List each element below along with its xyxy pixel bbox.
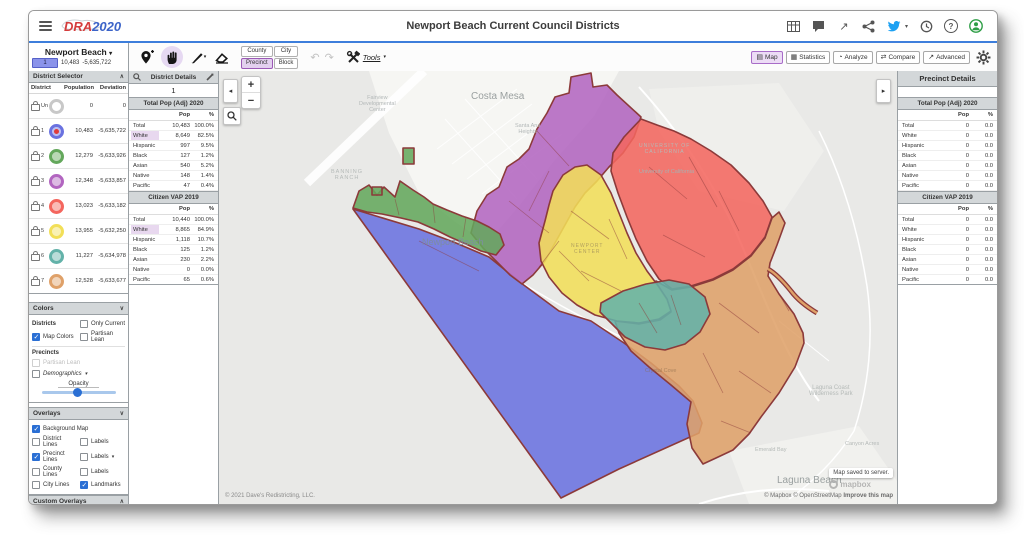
left-sidebar: District Selector∧ District Population D… (29, 71, 129, 504)
district-2-island-2[interactable] (372, 187, 382, 195)
logo-text-dra: DRA (64, 19, 92, 34)
map-attribution: © Mapbox © OpenStreetMap Improve this ma… (764, 493, 893, 499)
section-total-pop: Total Pop (Adj) 2020 (898, 98, 997, 110)
twitter-icon[interactable] (887, 19, 901, 33)
map-icon: ▤ (756, 54, 763, 61)
geo-city-button[interactable]: City (274, 46, 299, 57)
view-switcher: ▤Map ▦Statistics ◔Analyze ⇄Compare ↗Adva… (751, 50, 991, 65)
stat-row: Hispanic1,11810.7% (129, 235, 218, 245)
collapse-icon: ∨ (120, 410, 124, 417)
comment-icon[interactable] (812, 19, 826, 33)
paint-brush-tool[interactable]: ▾ (189, 47, 207, 67)
stat-row: Total00.0 (898, 215, 997, 225)
section-citizen-vap: Citizen VAP 2019 (898, 191, 997, 204)
stat-row: White8,86584.9% (129, 225, 218, 235)
chip-population: 10,483 (61, 60, 79, 66)
dra-attribution: © 2021 Dave's Redistricting, LLC. (225, 493, 315, 499)
district-color-swatch[interactable] (49, 99, 64, 114)
district-row-6[interactable]: 6 11,227 -5,634,978 (29, 244, 128, 269)
stat-row: Pacific00.0 (898, 181, 997, 191)
district-selector-columns: District Population Deviation (29, 83, 128, 94)
districts-label: Districts (32, 321, 77, 327)
mapbox-logo-icon (829, 480, 838, 489)
eraser-tool[interactable] (213, 47, 231, 67)
stat-row: Hispanic00.0 (898, 141, 997, 151)
section-citizen-vap: Citizen VAP 2019 (129, 191, 218, 204)
dra-logo[interactable]: DRA2020 (64, 19, 121, 34)
edit-pencil-icon[interactable] (206, 73, 214, 81)
lock-icon[interactable] (31, 104, 40, 111)
only-current-checkbox[interactable] (80, 320, 88, 328)
geo-precinct-button[interactable]: Precinct (241, 58, 273, 69)
district-labels-checkbox[interactable] (80, 438, 88, 446)
zoom-in-button[interactable]: + (242, 77, 260, 93)
stat-row: Native00.0 (898, 265, 997, 275)
demographics-checkbox[interactable] (32, 370, 40, 378)
stat-row: Black1251.2% (129, 245, 218, 255)
lock-icon[interactable] (31, 279, 40, 286)
stat-row: White00.0 (898, 131, 997, 141)
district-color-swatch[interactable] (49, 249, 64, 264)
opacity-slider-knob[interactable] (73, 388, 82, 397)
brush-caret-icon: ▾ (204, 54, 207, 60)
stat-row: Black00.0 (898, 245, 997, 255)
toolbar: Newport Beach ▾ 1 10,483 -5,635,722 ▾ Co… (29, 43, 997, 72)
lock-icon[interactable] (31, 179, 40, 186)
analyze-icon: ◔ (838, 54, 842, 61)
stat-row: Black1271.2% (129, 151, 218, 161)
district-row-3[interactable]: 3 12,348 -5,633,857 (29, 169, 128, 194)
stat-row: Pacific650.6% (129, 275, 218, 285)
demographics-caret-icon[interactable]: ▾ (85, 371, 88, 377)
district-row-2[interactable]: 2 12,279 -5,633,926 (29, 144, 128, 169)
district-row-un[interactable]: Un 0 0 (29, 94, 128, 119)
lock-icon[interactable] (31, 254, 40, 261)
share-icon[interactable] (862, 19, 876, 33)
history-buttons: ↶ ↷ (310, 51, 333, 64)
tab-advanced[interactable]: ↗Advanced (923, 51, 970, 64)
tab-analyze[interactable]: ◔Analyze (833, 51, 872, 64)
stat-row: Asian00.0 (898, 161, 997, 171)
tools-menu[interactable]: Tools ▾ (346, 50, 386, 64)
collapse-left-panel-button[interactable]: ◂ (223, 79, 238, 103)
geo-county-button[interactable]: County (241, 46, 273, 57)
top-bar: DRA2020 Newport Beach Current Council Di… (29, 11, 997, 41)
district-row-1[interactable]: 1 10,483 -5,635,722 (29, 119, 128, 144)
colors-panel: Colors∨ Districts Only Current Map Color… (29, 302, 128, 403)
settings-gear-icon[interactable] (976, 50, 991, 65)
pan-hand-tool[interactable] (161, 46, 183, 68)
landmarks-checkbox[interactable] (80, 481, 88, 489)
stat-row: Black00.0 (898, 151, 997, 161)
stat-row: Pacific00.0 (898, 275, 997, 285)
main-content: District Selector∧ District Population D… (29, 71, 997, 504)
collapse-right-panel-button[interactable]: ▸ (876, 79, 891, 103)
topbar-actions: ↗ ▾ ? (787, 19, 983, 33)
stat-row: White00.0 (898, 225, 997, 235)
magnifier-icon[interactable] (133, 73, 141, 81)
stat-row: Native00.0 (898, 171, 997, 181)
stat-row: Asian2302.2% (129, 255, 218, 265)
stat-row: Hispanic00.0 (898, 235, 997, 245)
district-selector-panel: District Selector∧ District Population D… (29, 71, 128, 294)
district-color-swatch[interactable] (49, 124, 64, 139)
table-view-icon[interactable] (787, 19, 801, 33)
paint-tools: ▾ (137, 46, 231, 68)
twitter-caret-icon[interactable]: ▾ (905, 23, 908, 30)
district-details-header: District Details (129, 71, 218, 84)
district-color-swatch[interactable] (49, 149, 64, 164)
stat-row: Native1481.4% (129, 171, 218, 181)
stat-row: White8,64982.5% (129, 131, 218, 141)
precinct-labels-checkbox[interactable] (80, 453, 88, 461)
map-colors-checkbox[interactable] (32, 333, 40, 341)
lock-icon[interactable] (31, 204, 40, 211)
tab-compare[interactable]: ⇄Compare (876, 51, 921, 64)
partisan-lean-checkbox[interactable] (80, 333, 88, 341)
add-point-tool[interactable] (137, 47, 155, 67)
precincts-label: Precincts (32, 346, 125, 356)
stat-row: Native00.0% (129, 265, 218, 275)
stat-row: Asian00.0 (898, 255, 997, 265)
zoom-to-fit-button[interactable] (223, 107, 241, 125)
stat-row: Asian5405.2% (129, 161, 218, 171)
compare-icon: ⇄ (881, 54, 887, 61)
stat-row: Total00.0 (898, 121, 997, 131)
redo-button[interactable]: ↷ (325, 51, 334, 64)
app-window: DRA2020 Newport Beach Current Council Di… (28, 10, 998, 505)
precinct-details-header: Precinct Details (898, 71, 997, 87)
district-details-value: 1 (129, 84, 218, 98)
district-row-7[interactable]: 7 12,528 -5,633,677 (29, 269, 128, 293)
logo-text-year: 2020 (92, 19, 121, 34)
background-map-checkbox[interactable] (32, 425, 40, 433)
opacity-label: Opacity (58, 381, 98, 388)
screen: DRA2020 Newport Beach Current Council Di… (0, 0, 1024, 543)
collapse-icon: ∧ (120, 498, 124, 505)
selected-district-stats: 1 10,483 -5,635,722 (29, 57, 128, 68)
stat-row: Total10,440100.0% (129, 215, 218, 225)
lock-icon[interactable] (31, 229, 40, 236)
district-lines-checkbox[interactable] (32, 438, 40, 446)
map-name-dropdown[interactable]: Newport Beach ▾ (29, 47, 128, 57)
hammer-wrench-icon (346, 50, 360, 64)
stat-row: Hispanic9979.5% (129, 141, 218, 151)
district-selector-header[interactable]: District Selector∧ (29, 71, 128, 83)
stat-row: Pacific470.4% (129, 181, 218, 191)
collapse-icon: ∧ (120, 73, 124, 80)
zoom-out-button[interactable]: − (242, 93, 260, 108)
map-selector-block: Newport Beach ▾ 1 10,483 -5,635,722 (29, 43, 129, 71)
opacity-control: Opacity (32, 381, 125, 394)
overlays-header[interactable]: Overlays∨ (29, 408, 128, 420)
district-color-swatch[interactable] (49, 274, 64, 289)
district-color-swatch[interactable] (49, 174, 64, 189)
district-2-island[interactable] (403, 148, 414, 164)
map-canvas[interactable]: Costa Mesa Fairview Developmental Center… (219, 71, 897, 504)
lock-icon[interactable] (31, 154, 40, 161)
geo-block-button[interactable]: Block (274, 58, 299, 69)
district-row-4[interactable]: 4 13,023 -5,633,182 (29, 194, 128, 219)
labels-caret-icon[interactable]: ▾ (112, 454, 115, 460)
map-saved-notice: Map saved to server. (829, 468, 893, 478)
county-lines-checkbox[interactable] (32, 468, 40, 476)
county-labels-checkbox[interactable] (80, 468, 88, 476)
undo-button[interactable]: ↶ (310, 51, 319, 64)
city-lines-checkbox[interactable] (32, 481, 40, 489)
advanced-icon: ↗ (928, 54, 934, 61)
district-chip[interactable]: 1 (32, 58, 58, 68)
district-details-panel: District Details 1 Total Pop (Adj) 2020 … (129, 71, 219, 504)
precinct-details-panel: Precinct Details Total Pop (Adj) 2020 Po… (897, 71, 997, 504)
mapbox-logo[interactable]: mapbox (829, 480, 871, 489)
colors-header[interactable]: Colors∨ (29, 303, 128, 315)
tab-statistics[interactable]: ▦Statistics (786, 51, 831, 64)
open-external-icon[interactable]: ↗ (837, 19, 851, 33)
district-color-swatch[interactable] (49, 224, 64, 239)
collapse-icon: ∨ (120, 305, 124, 312)
map-svg (219, 71, 897, 504)
help-icon[interactable]: ? (944, 19, 958, 33)
lock-icon[interactable] (31, 129, 40, 136)
chip-deviation: -5,635,722 (82, 60, 111, 66)
precinct-lines-checkbox[interactable] (32, 453, 40, 461)
geo-level-toggle: County City Precinct Block (241, 46, 298, 69)
improve-map-link[interactable]: Improve this map (843, 493, 893, 499)
statistics-icon: ▦ (791, 54, 798, 61)
overlays-panel: Overlays∨ Background Map District Lines … (29, 407, 128, 495)
district-row-5[interactable]: 5 13,955 -5,632,250 (29, 219, 128, 244)
precinct-details-empty-value (898, 87, 997, 98)
selected-district-dot (54, 129, 59, 134)
district-color-swatch[interactable] (49, 199, 64, 214)
history-icon[interactable] (919, 19, 933, 33)
tab-map[interactable]: ▤Map (751, 51, 782, 64)
opacity-slider[interactable] (42, 391, 116, 394)
map-zoom-control: + − (241, 76, 261, 109)
tools-caret-icon: ▾ (383, 54, 386, 60)
account-icon[interactable] (969, 19, 983, 33)
custom-overlays-header[interactable]: Custom Overlays∧ (29, 495, 128, 505)
stat-row: Total10,483100.0% (129, 121, 218, 131)
tools-label: Tools (363, 53, 381, 62)
section-total-pop: Total Pop (Adj) 2020 (129, 98, 218, 110)
precinct-partisan-lean-checkbox[interactable] (32, 359, 40, 367)
magnifier-icon (227, 111, 237, 121)
